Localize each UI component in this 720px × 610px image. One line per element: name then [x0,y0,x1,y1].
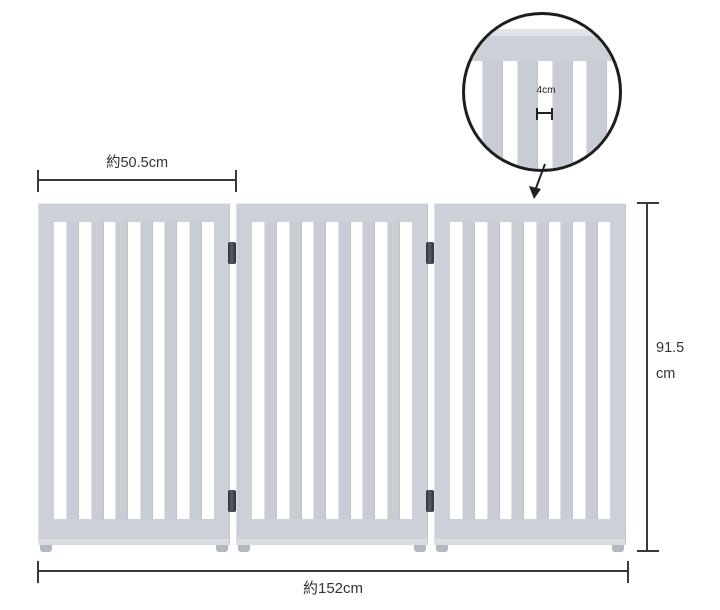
detail-arrow [505,150,585,210]
slat-gap-dimension-marker [536,108,553,120]
gate-panel-2 [236,203,428,545]
gate-slat [264,222,277,519]
gate-slat [585,222,598,519]
pet-gate [38,203,626,545]
panel-foot-right [216,545,228,552]
gate-slat [511,222,524,519]
gate-slat [189,222,202,519]
hinge [228,490,236,512]
gate-slat [560,222,573,519]
panel-foot-left [436,545,448,552]
gate-slat [91,222,104,519]
gate-slat [115,222,128,519]
panel-width-label: 約50.5cm [38,151,236,172]
detail-slat [482,61,503,172]
total-width-label: 約152cm [38,577,628,598]
gate-slat [487,222,500,519]
height-unit-label: cm [656,366,675,382]
panel-width-dimension-line [38,179,236,181]
gate-panel-3 [434,203,626,545]
gate-slat [362,222,375,519]
panel-foot-left [40,545,52,552]
hinge [426,490,434,512]
gate-slat [338,222,351,519]
panel-foot-left [238,545,250,552]
panel-slat-area [54,222,214,519]
hinge [228,242,236,264]
gate-slat [66,222,79,519]
total-width-dimension-line [38,570,628,572]
detail-slat [586,61,607,172]
panel-foot-right [612,545,624,552]
gate-slat [536,222,549,519]
gate-panel-1 [38,203,230,545]
gate-slat [164,222,177,519]
gate-slat [313,222,326,519]
panel-foot-right [414,545,426,552]
gate-slat [289,222,302,519]
detail-top-rail [462,29,622,61]
height-dimension-line [646,203,648,551]
gate-slat [387,222,400,519]
slat-gap-detail-circle: 4cm [462,12,622,172]
height-value-label: 91.5 [656,340,684,356]
slat-gap-label: 4cm [521,85,571,96]
panel-slat-area [450,222,610,519]
gate-slat [462,222,475,519]
hinge [426,242,434,264]
gate-slat [140,222,153,519]
product-dimension-diagram: 4cm 約50.5cm 91.5 cm [0,0,720,610]
panel-slat-area [252,222,412,519]
